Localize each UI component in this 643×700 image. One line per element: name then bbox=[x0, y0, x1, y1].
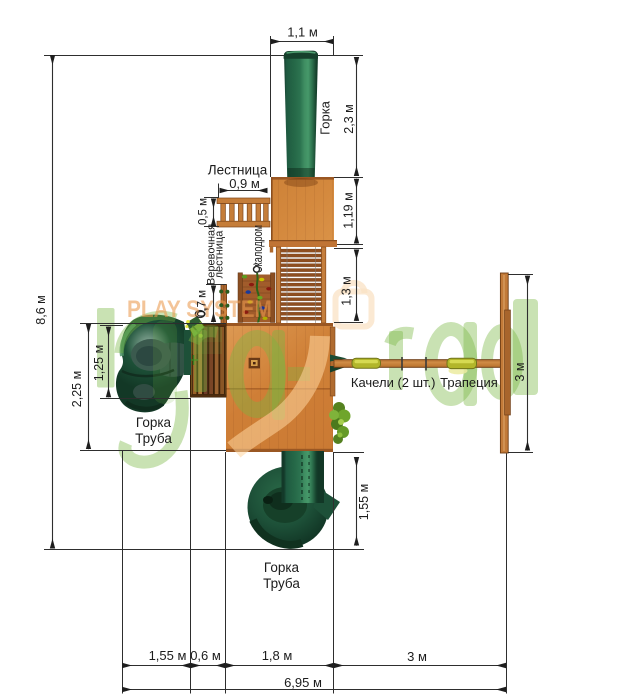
svg-text:2,3 м: 2,3 м bbox=[342, 104, 356, 133]
svg-text:Труба: Труба bbox=[263, 576, 300, 591]
svg-text:0,6 м: 0,6 м bbox=[190, 648, 221, 663]
svg-text:Скалодром: Скалодром bbox=[251, 225, 265, 273]
svg-text:Труба: Труба bbox=[135, 431, 172, 446]
svg-text:1,8 м: 1,8 м bbox=[262, 648, 293, 663]
svg-text:1,1 м: 1,1 м bbox=[287, 25, 318, 40]
svg-text:1,19 м: 1,19 м bbox=[342, 192, 356, 228]
svg-text:2,25 м: 2,25 м bbox=[70, 371, 84, 407]
svg-text:Горка: Горка bbox=[136, 415, 172, 430]
svg-text:Горка: Горка bbox=[264, 560, 300, 575]
svg-text:1,55 м: 1,55 м bbox=[357, 484, 371, 520]
svg-text:3 м: 3 м bbox=[407, 649, 427, 664]
svg-text:Качели (2 шт.): Качели (2 шт.) bbox=[351, 375, 436, 390]
svg-text:0,7 м: 0,7 м bbox=[197, 290, 209, 317]
svg-text:0,9 м: 0,9 м bbox=[229, 176, 260, 191]
svg-text:Горка: Горка bbox=[318, 100, 333, 135]
svg-text:1,25 м: 1,25 м bbox=[92, 345, 106, 381]
svg-text:лестница: лестница bbox=[214, 230, 226, 279]
svg-text:3 м: 3 м bbox=[513, 362, 527, 381]
svg-text:8,6 м: 8,6 м bbox=[34, 295, 48, 324]
svg-text:6,95 м: 6,95 м bbox=[284, 675, 322, 690]
svg-text:1,3 м: 1,3 м bbox=[340, 276, 354, 305]
svg-text:Трапеция: Трапеция bbox=[440, 375, 498, 390]
svg-text:0,5 м: 0,5 м bbox=[198, 198, 210, 225]
svg-text:1,55 м: 1,55 м bbox=[149, 648, 187, 663]
